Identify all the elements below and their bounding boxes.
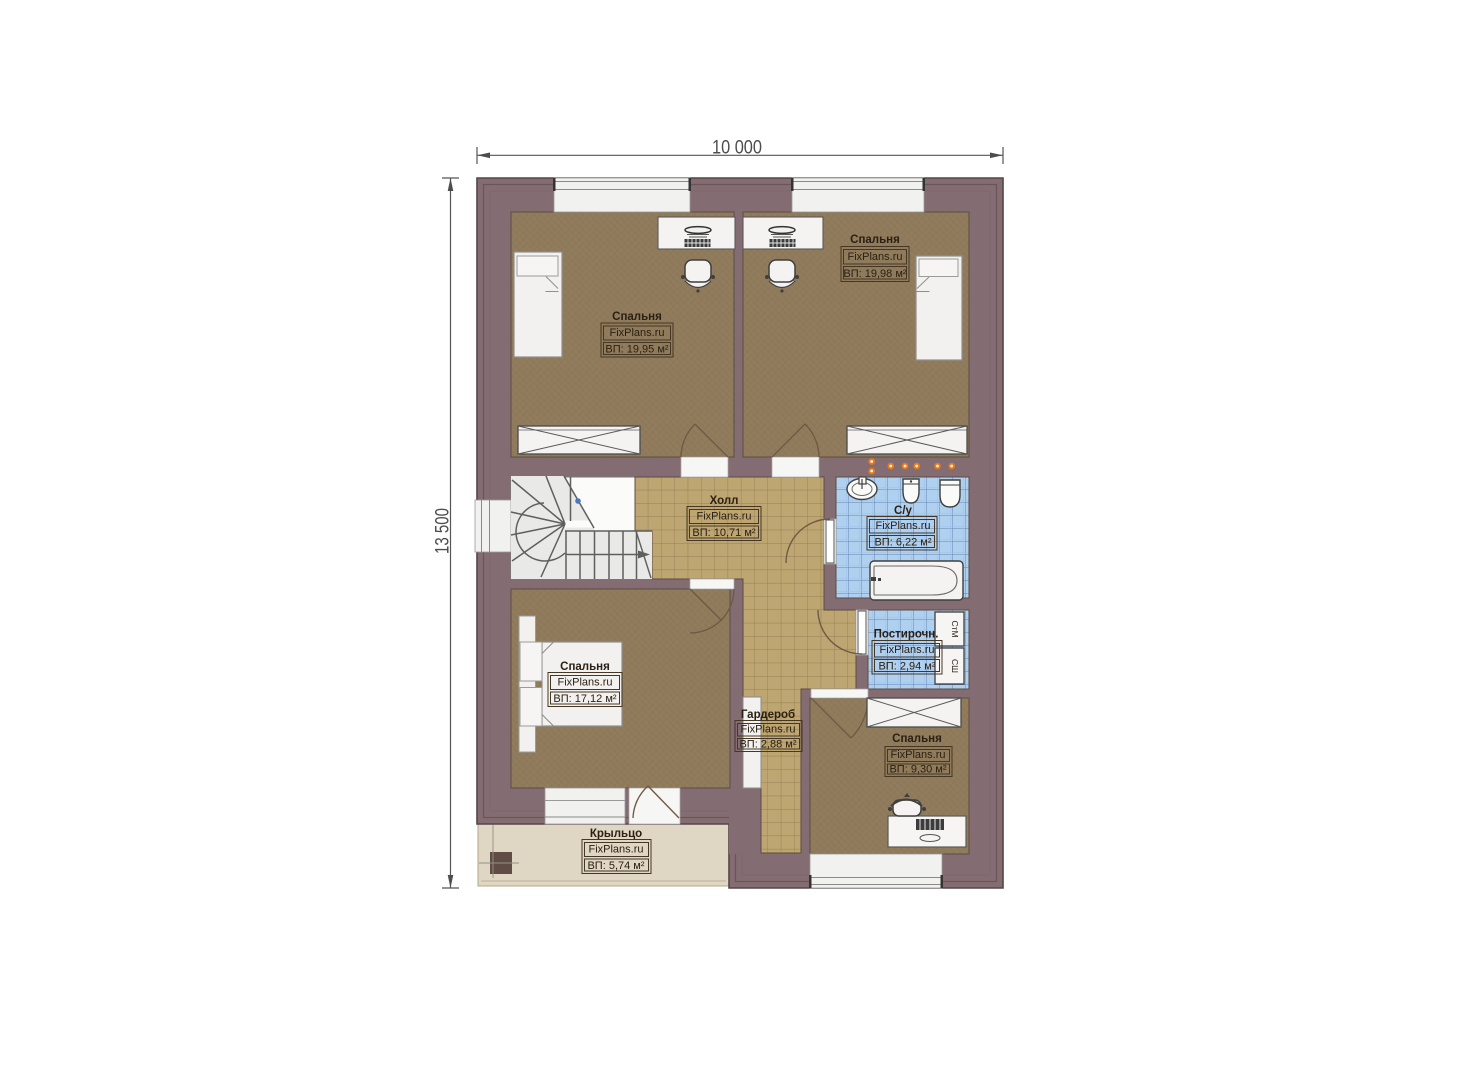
- svg-text:Гардероб: Гардероб: [741, 709, 795, 721]
- svg-text:Крыльцо: Крыльцо: [590, 828, 642, 840]
- svg-text:FixPlans.ru: FixPlans.ru: [740, 724, 795, 736]
- svg-text:FixPlans.ru: FixPlans.ru: [557, 677, 612, 689]
- svg-text:СтМ: СтМ: [950, 620, 960, 637]
- svg-text:СШ: СШ: [950, 659, 960, 673]
- svg-text:FixPlans.ru: FixPlans.ru: [847, 251, 902, 263]
- svg-text:Спальня: Спальня: [612, 311, 662, 323]
- svg-text:ВП: 2,88 м²: ВП: 2,88 м²: [739, 739, 796, 751]
- svg-text:FixPlans.ru: FixPlans.ru: [588, 844, 643, 856]
- svg-text:ВП: 19,95 м²: ВП: 19,95 м²: [605, 344, 669, 356]
- svg-text:ВП: 19,98 м²: ВП: 19,98 м²: [843, 268, 907, 280]
- svg-text:С/у: С/у: [894, 505, 913, 517]
- svg-text:Спальня: Спальня: [850, 234, 900, 246]
- svg-text:ВП: 9,30 м²: ВП: 9,30 м²: [889, 764, 946, 776]
- svg-text:10 000: 10 000: [712, 137, 762, 158]
- svg-text:Спальня: Спальня: [892, 733, 942, 745]
- svg-text:Холл: Холл: [710, 495, 739, 507]
- svg-text:ВП: 5,74 м²: ВП: 5,74 м²: [587, 860, 644, 872]
- svg-text:Спальня: Спальня: [560, 661, 610, 673]
- svg-text:FixPlans.ru: FixPlans.ru: [696, 511, 751, 523]
- svg-text:FixPlans.ru: FixPlans.ru: [609, 327, 664, 339]
- svg-text:ВП: 17,12 м²: ВП: 17,12 м²: [553, 693, 617, 705]
- svg-text:ВП: 2,94 м²: ВП: 2,94 м²: [878, 661, 935, 673]
- svg-text:Постирочн.: Постирочн.: [874, 629, 939, 641]
- svg-text:13 500: 13 500: [433, 508, 454, 554]
- svg-text:ВП: 6,22 м²: ВП: 6,22 м²: [874, 537, 931, 549]
- svg-text:FixPlans.ru: FixPlans.ru: [890, 749, 945, 761]
- svg-text:FixPlans.ru: FixPlans.ru: [875, 520, 930, 532]
- svg-text:FixPlans.ru: FixPlans.ru: [879, 644, 934, 656]
- svg-text:ВП: 10,71 м²: ВП: 10,71 м²: [692, 527, 756, 539]
